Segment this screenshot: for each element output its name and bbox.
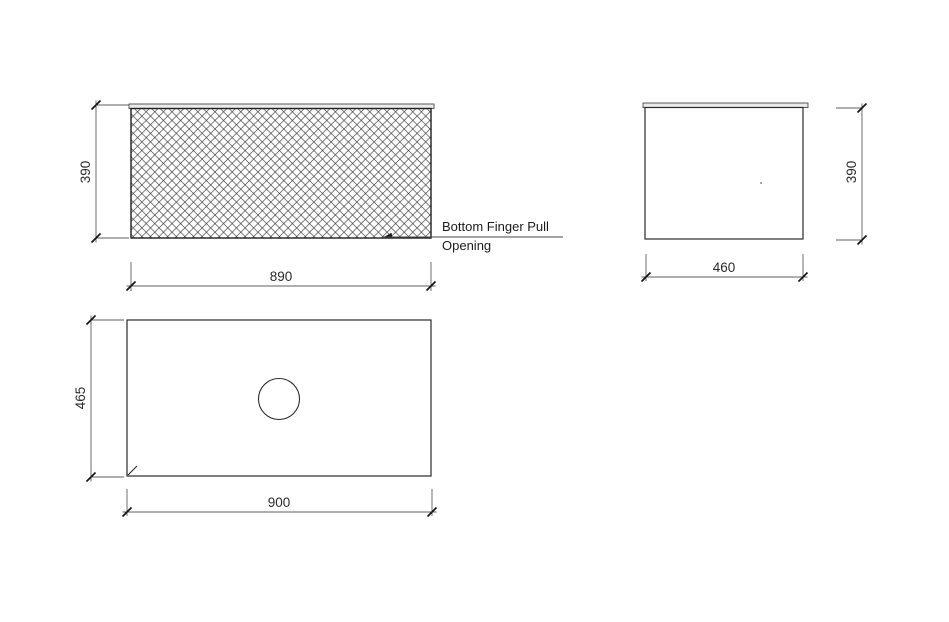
dim-front-height: 390 [78, 101, 129, 243]
drawing-page: 390 890 Bottom Finger Pull Opening [0, 0, 949, 622]
dim-label-plan-depth: 465 [73, 387, 88, 410]
annotation-line-1: Bottom Finger Pull [442, 219, 549, 234]
dim-side-depth: 460 [642, 254, 808, 282]
annotation-line-2: Opening [442, 238, 491, 253]
dim-plan-width: 900 [123, 489, 437, 517]
dim-label-side-depth: 460 [713, 260, 736, 275]
side-countertop [643, 103, 808, 108]
dim-front-width: 890 [127, 262, 436, 291]
stray-dot [760, 182, 762, 184]
front-cabinet-panel [131, 109, 431, 239]
dim-label-side-height: 390 [844, 161, 859, 184]
dim-plan-depth: 465 [73, 316, 124, 482]
dim-label-plan-width: 900 [268, 495, 291, 510]
front-elevation-view: 390 890 Bottom Finger Pull Opening [78, 101, 563, 292]
side-elevation-view: 460 390 [642, 103, 867, 282]
dim-side-height: 390 [836, 104, 867, 245]
plan-view: 465 900 [73, 316, 437, 517]
technical-drawing-canvas: 390 890 Bottom Finger Pull Opening [0, 0, 949, 622]
dim-label-front-width: 890 [270, 269, 293, 284]
dim-label-front-height: 390 [78, 161, 93, 184]
cutout-circle [259, 379, 300, 420]
side-cabinet-panel [645, 108, 803, 240]
